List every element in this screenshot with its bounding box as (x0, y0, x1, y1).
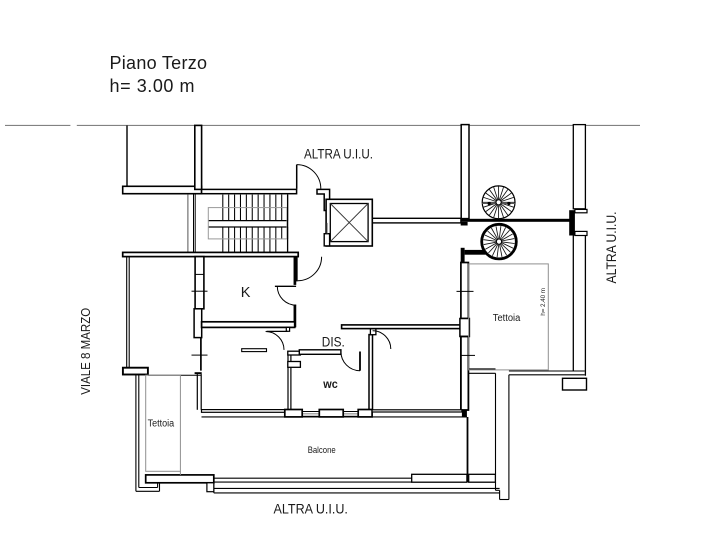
svg-text:ALTRA U.I.U.: ALTRA U.I.U. (274, 500, 348, 516)
svg-text:h= 2.40 m: h= 2.40 m (540, 288, 547, 316)
svg-text:K: K (241, 285, 251, 301)
svg-text:Balcone: Balcone (308, 445, 336, 456)
svg-text:Tettoia: Tettoia (493, 313, 521, 324)
svg-text:VIALE 8 MARZO: VIALE 8 MARZO (79, 308, 93, 395)
svg-text:wc: wc (322, 377, 338, 391)
svg-text:h= 3.00 m: h= 3.00 m (110, 76, 195, 96)
svg-text:ALTRA U.I.U.: ALTRA U.I.U. (604, 212, 619, 284)
svg-text:Tettoia: Tettoia (148, 418, 175, 429)
svg-text:ALTRA U.I.U.: ALTRA U.I.U. (304, 146, 373, 161)
svg-text:Piano Terzo: Piano Terzo (110, 53, 208, 73)
svg-text:DIS.: DIS. (322, 334, 345, 350)
